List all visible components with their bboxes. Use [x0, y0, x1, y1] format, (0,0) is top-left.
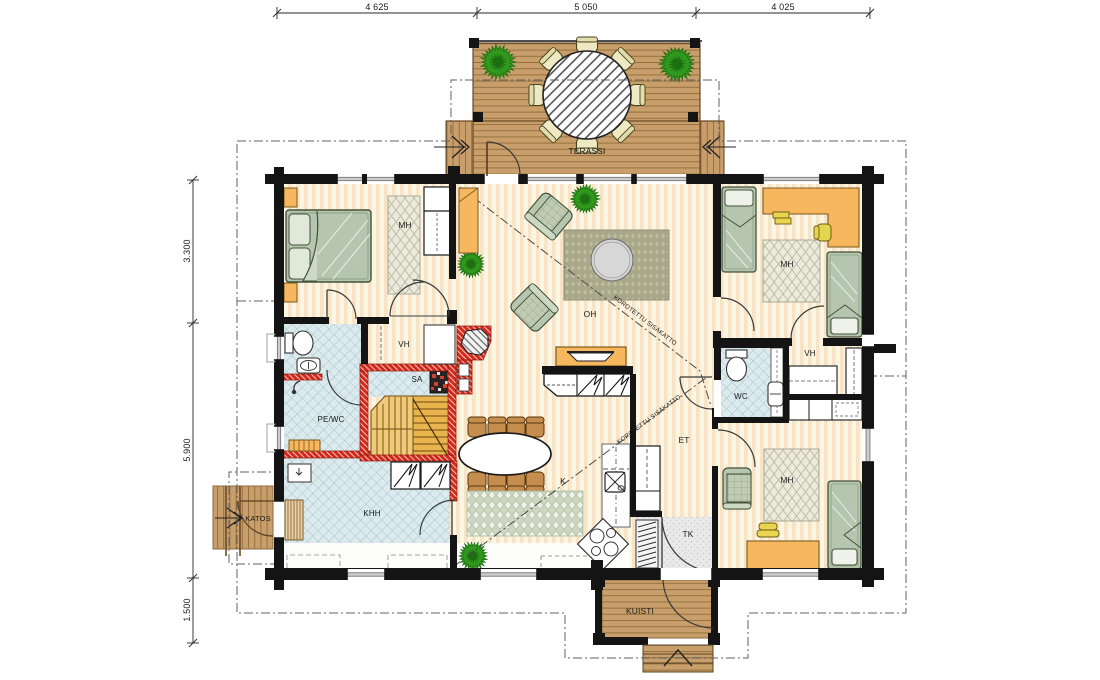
svg-text:4 625: 4 625	[365, 2, 388, 12]
svg-text:MH: MH	[398, 220, 411, 230]
svg-text:TERASSI: TERASSI	[569, 146, 606, 156]
svg-text:3.300: 3.300	[182, 239, 192, 262]
svg-text:KHH: KHH	[363, 509, 380, 518]
svg-text:K: K	[560, 476, 566, 486]
svg-text:TK: TK	[682, 529, 693, 539]
svg-text:MH: MH	[780, 259, 793, 269]
svg-text:MH: MH	[780, 475, 793, 485]
svg-text:5 050: 5 050	[574, 2, 597, 12]
svg-text:ET: ET	[678, 435, 689, 445]
svg-text:KUISTI: KUISTI	[626, 606, 654, 616]
svg-text:WC: WC	[734, 392, 748, 401]
svg-text:1.500: 1.500	[182, 598, 192, 621]
svg-text:KATOS: KATOS	[245, 514, 270, 523]
svg-text:4 025: 4 025	[771, 2, 794, 12]
svg-text:VH: VH	[804, 349, 815, 358]
svg-text:OH: OH	[584, 309, 597, 319]
svg-text:SA: SA	[412, 375, 423, 384]
svg-text:VH: VH	[398, 340, 409, 349]
svg-text:5.900: 5.900	[182, 438, 192, 461]
svg-text:PE/WC: PE/WC	[318, 415, 345, 424]
